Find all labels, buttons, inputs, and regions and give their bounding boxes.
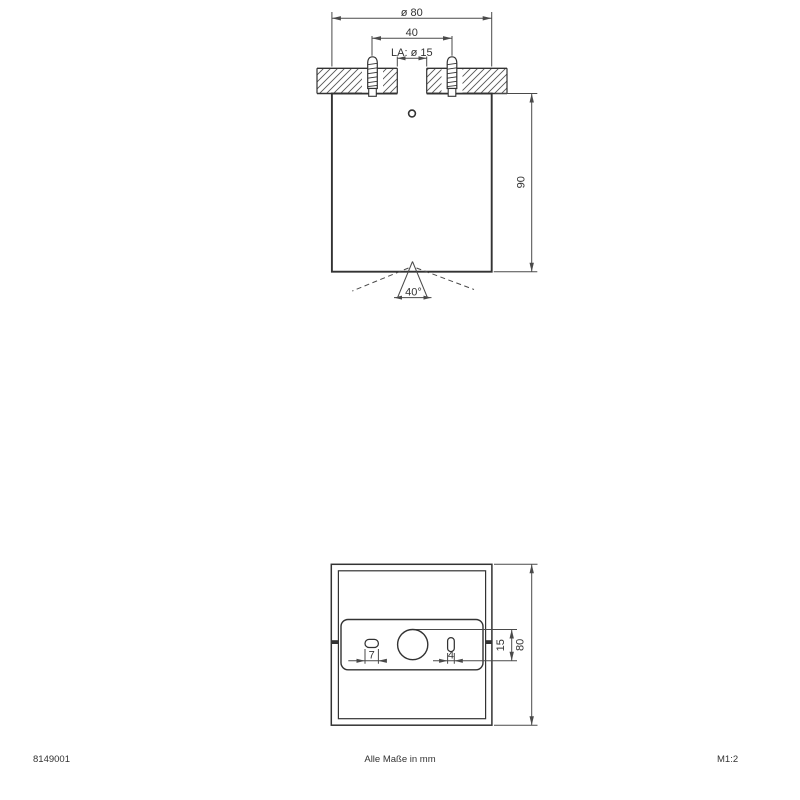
dimension-cutout-15: LA: ø 15 bbox=[391, 47, 433, 67]
arrowhead-icon bbox=[530, 716, 534, 725]
screw-left-head bbox=[369, 89, 377, 97]
arrowhead-icon bbox=[332, 16, 341, 20]
screw-icon bbox=[368, 57, 378, 97]
dim-label-slot-right: 4 bbox=[448, 650, 454, 662]
mounting-slot-left bbox=[365, 639, 378, 647]
seam-mark-left bbox=[332, 640, 338, 644]
arrowhead-icon bbox=[424, 296, 432, 300]
arrowhead-icon bbox=[510, 652, 514, 661]
drawing-canvas: 40° ø 80 40 LA: ø 15 bbox=[0, 0, 800, 800]
arrowhead-icon bbox=[483, 16, 492, 20]
ceiling-section bbox=[317, 67, 507, 95]
scale-label: M1:2 bbox=[717, 754, 738, 765]
technical-drawing-page: 40° ø 80 40 LA: ø 15 bbox=[0, 0, 800, 800]
arrowhead-icon bbox=[530, 263, 534, 272]
arrowhead-icon bbox=[530, 564, 534, 573]
ceiling-cutout bbox=[397, 67, 426, 95]
arrowhead-icon bbox=[443, 36, 452, 40]
screw-right-head bbox=[448, 89, 456, 97]
dim-label-slot-left: 7 bbox=[369, 650, 375, 662]
dim-label-height: 90 bbox=[515, 176, 527, 188]
beam-angle-label: 40° bbox=[405, 287, 422, 299]
seam-mark-right bbox=[486, 640, 492, 644]
side-view: 40° ø 80 40 LA: ø 15 bbox=[317, 7, 537, 300]
arrowhead-icon bbox=[530, 94, 534, 103]
dim-label-cutout: LA: ø 15 bbox=[391, 47, 433, 59]
dim-label-hole: 15 bbox=[495, 639, 507, 651]
dimension-height-90: 90 bbox=[494, 94, 538, 272]
bottom-view: 7 4 15 80 bbox=[331, 564, 537, 725]
dim-label-screw-spacing: 40 bbox=[406, 27, 418, 39]
fixture-body bbox=[332, 94, 492, 272]
body-screw-hole bbox=[409, 110, 416, 117]
dimension-hole-15: 15 bbox=[495, 630, 514, 661]
arrowhead-icon bbox=[372, 36, 381, 40]
dimensions-note: Alle Maße in mm bbox=[0, 754, 800, 765]
dim-label-width: 80 bbox=[515, 639, 527, 651]
dim-label-diameter: ø 80 bbox=[401, 7, 423, 19]
arrowhead-icon bbox=[510, 630, 514, 639]
screw-icon bbox=[447, 57, 457, 97]
cable-hole bbox=[398, 630, 428, 660]
